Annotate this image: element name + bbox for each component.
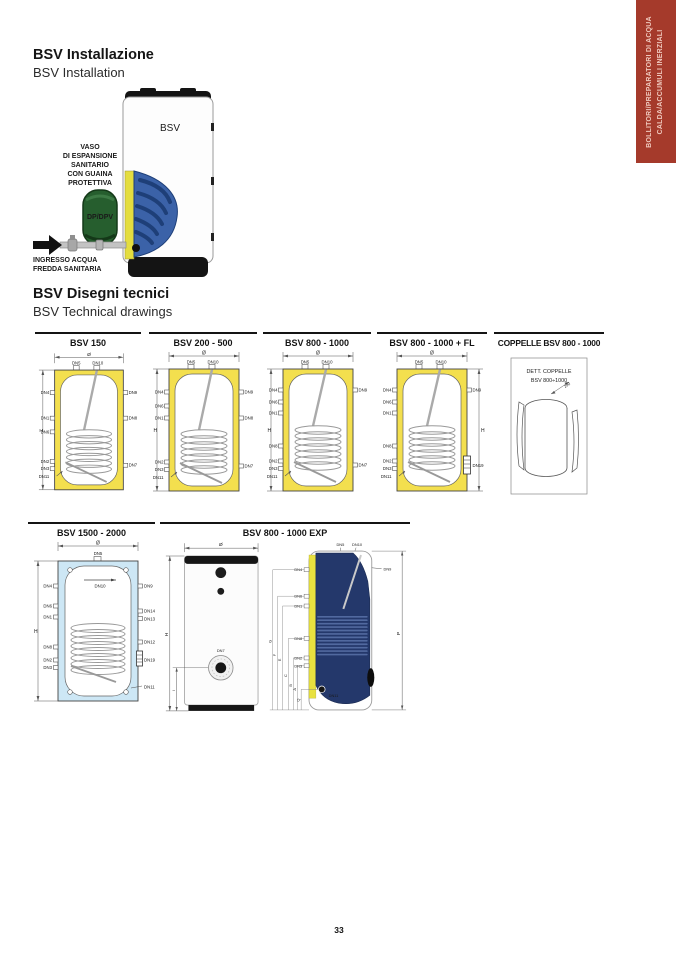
port-label: DN3	[155, 467, 164, 472]
port-label: DN9	[384, 567, 392, 572]
insulation-body	[316, 553, 370, 704]
port-label: DN14	[144, 609, 155, 614]
flange	[137, 651, 143, 666]
svg-text:DI ESPANSIONE: DI ESPANSIONE	[63, 153, 118, 160]
technical-drawing-bsv-150: Ø DN5 DN10 DN4 DN1 DN6 DN2	[35, 350, 141, 502]
dimension-label: H	[154, 428, 158, 434]
tank-label: BSV	[160, 123, 180, 134]
port-label: DN3	[43, 665, 52, 670]
panel-header: BSV 800 - 1000 + FL	[377, 332, 487, 348]
expansion-vessel-label: DP/DPV	[87, 214, 113, 221]
port-label: DN5	[94, 551, 103, 556]
dimension-label: P	[396, 632, 402, 635]
port-label: DN2	[41, 459, 50, 464]
page-number: 33	[0, 925, 678, 935]
technical-drawing-bsv-200-500: Ø DN5 DN10 DN4 DN6 DN1 DN2 DN3	[149, 350, 257, 502]
port-label: DN12	[144, 640, 155, 645]
port-label: DN9	[144, 584, 153, 589]
dimension-label: Q	[296, 699, 301, 702]
section-title-it: BSV Disegni tecnici	[33, 286, 169, 302]
panel-bsv-800-1000-fl: BSV 800 - 1000 + FL Ø DN5 DN10	[377, 332, 487, 502]
port-label: DN4	[155, 390, 164, 395]
port-label: DN5	[415, 360, 424, 365]
port-label: DN5	[187, 360, 196, 365]
expansion-label: VASO DI ESPANSIONE SANITARIO CON GUAINA …	[63, 144, 118, 187]
port-label: DN19	[144, 658, 155, 663]
port-label: DN1	[43, 615, 52, 620]
technical-drawing-bsv-800-1000-fl: Ø DN5 DN10 DN4 DN6 DN1 DN8	[377, 350, 487, 502]
svg-text:VASO: VASO	[80, 144, 100, 151]
flow-arrow-icon	[33, 235, 62, 255]
panel-bsv-800-1000: BSV 800 - 1000 Ø DN5 DN10	[263, 332, 371, 502]
dimension-label: Ø	[316, 351, 320, 357]
port-label: DN6	[383, 400, 392, 405]
flange	[464, 456, 471, 474]
exp-front-view: Ø DN7 H I	[164, 542, 258, 711]
port-label: DN3	[269, 466, 278, 471]
port-label: DN2	[269, 459, 278, 464]
port-label: DN1	[155, 416, 164, 421]
port-label: DN4	[41, 390, 50, 395]
dimension-label: B	[288, 684, 293, 687]
catalog-page: BOLLITORI/PREPARATORI DI ACQUA CALDA/ACC…	[0, 0, 678, 959]
section-title-en: BSV Technical drawings	[33, 304, 172, 319]
panel-header: BSV 800 - 1000 EXP	[160, 522, 410, 538]
dimension-label: Ø	[219, 542, 223, 548]
panel-header: BSV 1500 - 2000	[28, 522, 155, 538]
port-label: DN2	[383, 459, 392, 464]
port-label: DN5	[72, 361, 81, 366]
technical-drawing-bsv-800-1000: Ø DN5 DN10 DN4 DN6 DN1 DN8	[263, 350, 371, 502]
dimension-label: G	[267, 640, 272, 643]
port-label: DN3	[383, 466, 392, 471]
page-title-it: BSV Installazione	[33, 47, 154, 63]
dimension-label: Ø	[87, 352, 91, 358]
panel-header: BSV 150	[35, 332, 141, 348]
inlet-label: INGRESSO ACQUA FREDDA SANITARIA	[33, 257, 101, 273]
svg-text:PROTETTIVA: PROTETTIVA	[68, 180, 112, 187]
port-label: DN11	[144, 685, 155, 690]
port-label: DN11	[153, 475, 164, 480]
port-label: DN7	[217, 648, 225, 653]
port-label: DN9	[129, 390, 138, 395]
port-label: DN13	[144, 617, 155, 622]
dimension-label: I	[171, 690, 176, 691]
panel-bsv-1500-2000: BSV 1500 - 2000 Ø DN5 DN10	[28, 522, 155, 718]
dimension-label: H	[481, 428, 485, 434]
port-label: DN4	[383, 388, 392, 393]
technical-drawing-bsv-800-1000-exp: Ø DN7 H I	[160, 540, 410, 722]
dimension-label: A	[292, 688, 297, 691]
page-title-en: BSV Installation	[33, 65, 125, 80]
technical-drawing-bsv-1500-2000: Ø DN5 DN10	[28, 540, 155, 718]
port-label: DN11	[381, 474, 392, 479]
port-label: DN10	[95, 584, 107, 589]
category-tab-line2: CALDA/ACCUMULI INERZIALI	[656, 0, 667, 163]
detail-caption-line1: DETT. COPPELLE	[527, 369, 572, 375]
port-label: DN2	[155, 460, 164, 465]
panel-coppelle: COPPELLE BSV 800 - 1000 DETT. COPPELLE B…	[494, 332, 604, 502]
port-label: DN8	[383, 444, 392, 449]
port-label: DN6	[43, 604, 52, 609]
dimension-label: H	[164, 632, 170, 636]
port-label: DN7	[129, 463, 138, 468]
port-label: DN8	[129, 416, 138, 421]
port-label: DN4	[269, 388, 278, 393]
port-label: DN8	[269, 444, 278, 449]
port-label: DN10	[208, 360, 220, 365]
detail-caption-line2: BSV 800÷1000	[531, 378, 567, 384]
port-label: DN7	[359, 463, 368, 468]
port-label: DN2	[43, 658, 52, 663]
panel-header: BSV 200 - 500	[149, 332, 257, 348]
port-label: DN11	[329, 693, 339, 698]
port-label: DN7	[245, 464, 254, 469]
port-label: DN19	[473, 463, 485, 468]
dimension-label: H	[268, 428, 272, 434]
port-label: DN1	[269, 411, 278, 416]
svg-text:CON GUAINA: CON GUAINA	[67, 171, 112, 178]
svg-text:FREDDA SANITARIA: FREDDA SANITARIA	[33, 266, 101, 273]
panel-bsv-150: BSV 150 Ø DN5 DN10	[35, 332, 141, 502]
port-label: DN1	[41, 416, 50, 421]
dimension-label: H	[34, 629, 38, 635]
panel-header: BSV 800 - 1000	[263, 332, 371, 348]
port-label: DN10	[436, 360, 448, 365]
panel-header: COPPELLE BSV 800 - 1000	[494, 332, 604, 348]
panel-bsv-200-500: BSV 200 - 500 Ø DN5 DN10	[149, 332, 257, 502]
port-label: DN10	[92, 361, 103, 366]
panel-bsv-800-1000-exp: BSV 800 - 1000 EXP Ø DN7	[160, 522, 410, 722]
port-label: DN9	[245, 390, 254, 395]
technical-drawing-coppelle: DETT. COPPELLE BSV 800÷1000 290	[494, 350, 604, 502]
port-label: DN10	[322, 360, 334, 365]
category-tab-line1: BOLLITORI/PREPARATORI DI ACQUA	[645, 0, 656, 163]
port-label: DN6	[269, 400, 278, 405]
dimension-label: H	[39, 428, 43, 434]
port-label: DN8	[43, 645, 52, 650]
port-label: DN5	[336, 542, 345, 547]
port-label: DN8	[245, 416, 254, 421]
port-label: DN1	[383, 411, 392, 416]
port-label: DN9	[473, 388, 482, 393]
installation-figure: BSV DP/DPV VASO DI ESPANSIONE SANITARIO	[28, 85, 243, 287]
port-label: DN9	[359, 388, 368, 393]
port-label: DN4	[43, 584, 52, 589]
dimension-label: Ø	[96, 541, 100, 547]
port-label: DN3	[41, 466, 50, 471]
dimension-label: E	[277, 658, 282, 661]
svg-text:SANITARIO: SANITARIO	[71, 162, 110, 169]
port-label: DN5	[301, 360, 310, 365]
category-tab: BOLLITORI/PREPARATORI DI ACQUA CALDA/ACC…	[636, 0, 676, 163]
exp-cutaway-view: DN5 DN10 DN11	[267, 542, 406, 710]
svg-text:INGRESSO ACQUA: INGRESSO ACQUA	[33, 257, 97, 264]
dimension-label: Ø	[202, 351, 206, 357]
port-label: DN10	[352, 542, 363, 547]
storage-tank: BSV	[123, 88, 214, 277]
port-label: DN11	[267, 474, 278, 479]
dimension-label: Ø	[430, 351, 434, 357]
port-label: DN11	[39, 474, 50, 479]
dimension-label: C	[283, 674, 288, 677]
port-label: DN6	[155, 404, 164, 409]
